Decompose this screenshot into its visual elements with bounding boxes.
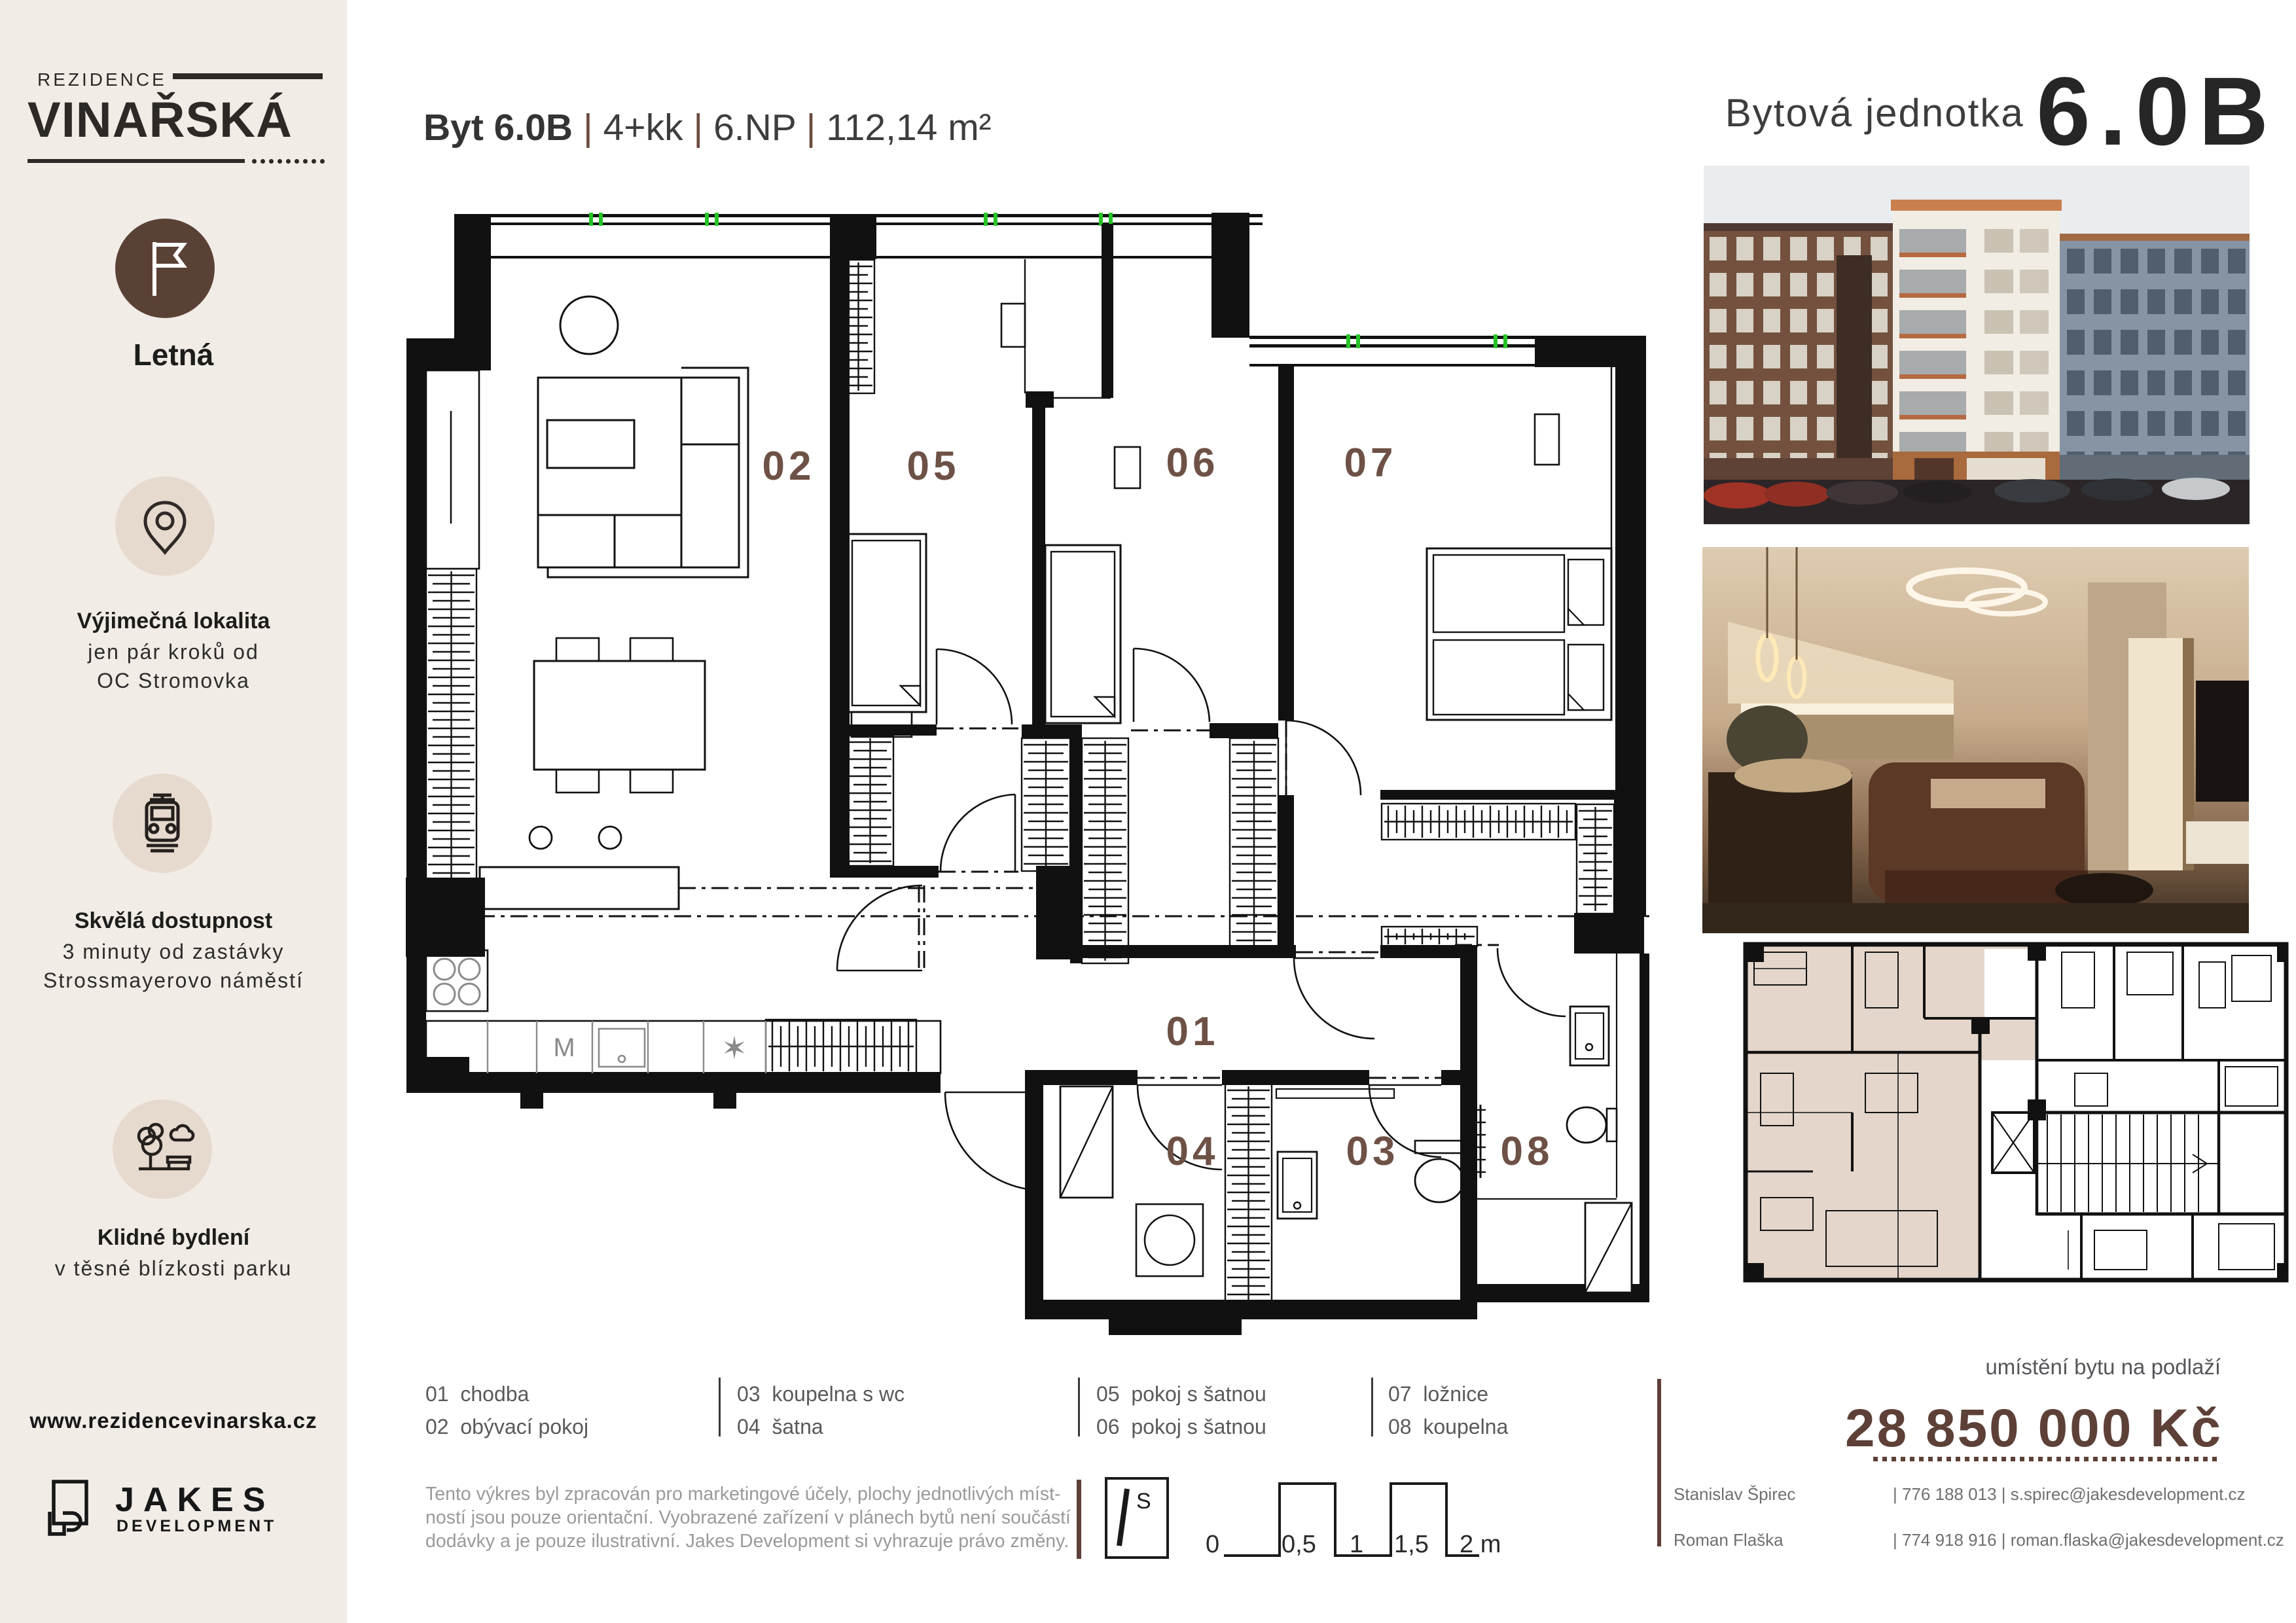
svg-text:1,5: 1,5 [1394, 1531, 1429, 1558]
svg-text:0: 0 [1206, 1531, 1219, 1558]
svg-text:1: 1 [1350, 1531, 1363, 1558]
svg-text:2 m: 2 m [1460, 1531, 1501, 1558]
svg-text:0,5: 0,5 [1282, 1531, 1316, 1558]
svg-text:S: S [1136, 1489, 1151, 1514]
